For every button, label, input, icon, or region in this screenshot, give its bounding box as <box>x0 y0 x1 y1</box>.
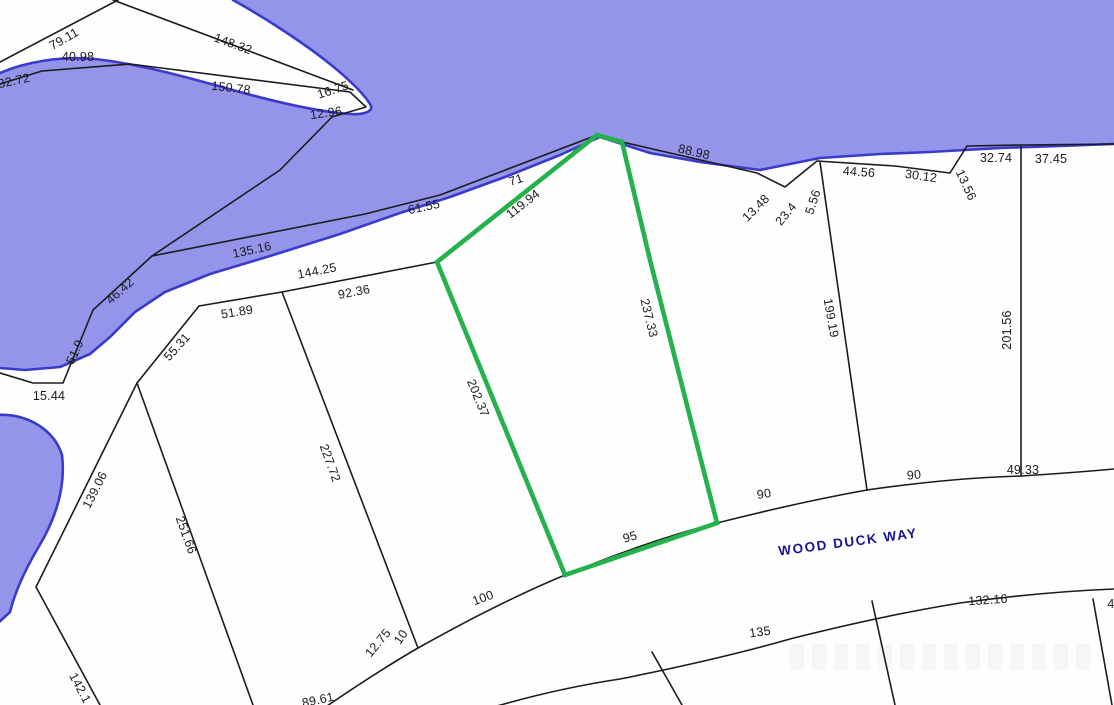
labels-layer: 79.11148.3240.9832.72150.7816.7512.96716… <box>0 0 1114 705</box>
dimension-label: 202.37 <box>464 377 492 419</box>
dimension-label: 12.96 <box>309 104 343 122</box>
dimension-label: 49.33 <box>1007 463 1039 477</box>
dimension-label: 15.44 <box>33 389 65 403</box>
dimension-label: 51.89 <box>220 303 254 322</box>
dimension-label: 90 <box>906 467 921 482</box>
dimension-label: 32.74 <box>980 151 1012 165</box>
dimension-label: 30.12 <box>904 167 938 185</box>
dimension-label: 71 <box>507 171 525 189</box>
dimension-label: 51.9 <box>63 338 86 367</box>
dimension-label: 144.25 <box>296 260 337 281</box>
dimension-label: 13.56 <box>953 167 979 202</box>
dimension-label: 4 <box>1107 597 1114 611</box>
dimension-label: 13.48 <box>740 192 773 225</box>
dimension-label: 88.98 <box>677 142 712 163</box>
dimension-label: 79.11 <box>47 25 81 53</box>
dimension-label: 10 <box>391 627 411 647</box>
dimension-label: 44.56 <box>842 164 875 180</box>
dimension-label: 100 <box>471 588 496 608</box>
dimension-label: 55.31 <box>161 330 193 363</box>
dimension-label: 148.32 <box>212 31 254 58</box>
dimension-label: 61.55 <box>407 197 441 217</box>
dimension-label: 23.4 <box>773 200 800 228</box>
dimension-label: 201.56 <box>1000 310 1014 349</box>
dimension-label: 90 <box>756 486 773 502</box>
dimension-label: 119.94 <box>504 187 543 222</box>
dimension-label: 37.45 <box>1035 152 1067 166</box>
dimension-label: 89.61 <box>301 690 335 705</box>
dimension-label: 237.33 <box>637 297 660 339</box>
dimension-label: 199.19 <box>821 297 842 338</box>
dimension-label: 16.75 <box>315 78 350 101</box>
plat-map: 79.11148.3240.9832.72150.7816.7512.96716… <box>0 0 1114 705</box>
dimension-label: 92.36 <box>337 282 371 302</box>
dimension-label: 139.06 <box>80 469 110 510</box>
dimension-label: 132.16 <box>968 592 1008 609</box>
dimension-label: 5.56 <box>802 188 823 216</box>
dimension-label: 227.72 <box>317 442 344 484</box>
dimension-label: 95 <box>621 528 639 546</box>
dimension-label: 12.75 <box>362 626 393 660</box>
dimension-label: 251.66 <box>173 514 200 556</box>
dimension-label: 135 <box>748 624 771 641</box>
dimension-label: 40.98 <box>62 50 94 64</box>
dimension-label: 150.78 <box>211 79 252 98</box>
dimension-label: 32.72 <box>0 71 31 91</box>
dimension-label: 46.42 <box>103 275 136 307</box>
dimension-label: 142.1 <box>66 670 94 705</box>
dimension-label: 135.16 <box>231 239 272 261</box>
